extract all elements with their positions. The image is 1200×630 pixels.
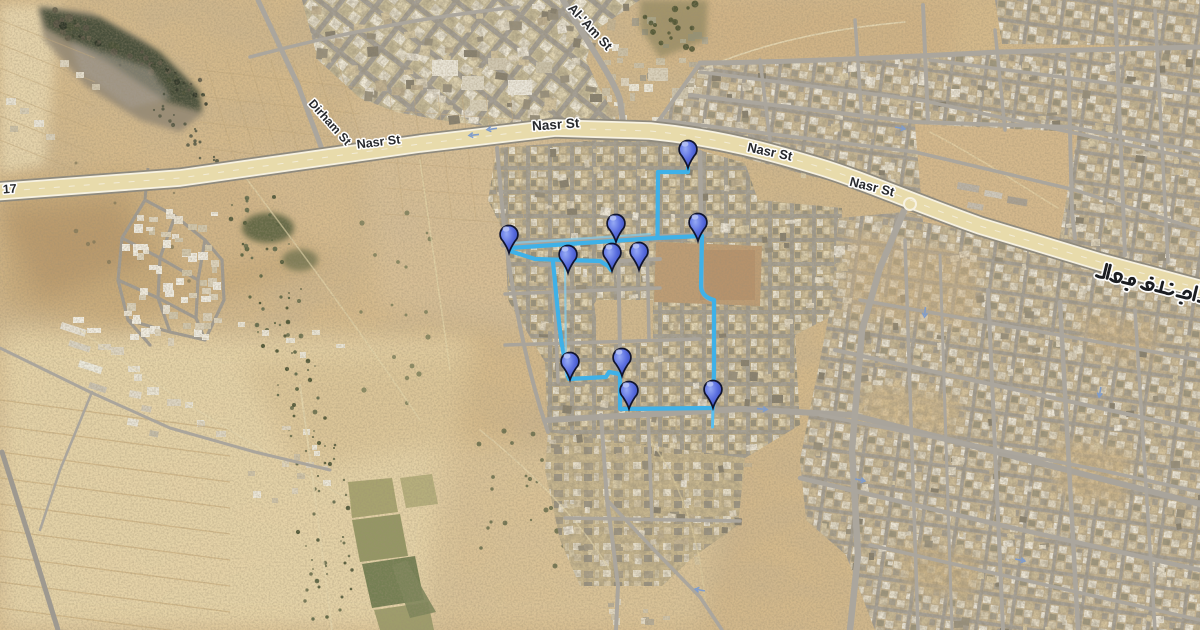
svg-text:17: 17 (2, 182, 17, 197)
